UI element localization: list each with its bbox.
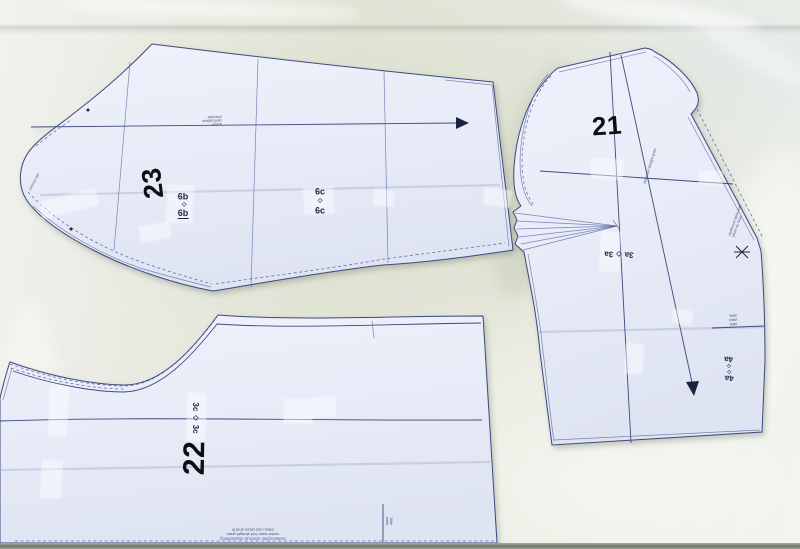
tape-piece (312, 397, 337, 418)
match-mark-6b-bottom: 6b (178, 209, 189, 219)
piece-21-number: 21 (591, 109, 623, 142)
tape-piece (284, 399, 312, 424)
match-mark-3a: 3a (625, 250, 634, 258)
match-diamond-icon: ◇ (727, 368, 731, 373)
piece-23-outline (20, 44, 513, 291)
piece-21-waist-text: Taille waist taille (729, 314, 738, 327)
tape-piece (47, 385, 69, 436)
piece-21-outline (513, 48, 765, 445)
match-mark-6c-bottom: 6c (315, 207, 325, 216)
tape-piece (483, 187, 512, 208)
match-diamond-icon: ◇ (190, 415, 201, 420)
tape-piece (373, 189, 394, 207)
piece-23-shape (20, 44, 513, 291)
match-mark-6b-top: 6b (178, 193, 189, 202)
match-mark-3c-pair: 3c ◇ 3c (189, 402, 201, 433)
fabric-bottom-edge (0, 543, 800, 549)
match-mark-4a: 4a (724, 354, 733, 363)
piece-23-grainline-text: fadenlauf straight grain droit fil (202, 115, 222, 127)
match-mark-4a: 4a (725, 373, 734, 382)
grain-text-line: droit fil (202, 123, 222, 128)
photo-sewing-patterns-on-fabric: 23 6b ◇ 6b 6c ◇ 6c fadenlauf straight gr… (0, 0, 800, 549)
match-mark-3a-pair: 3a ◇ 3a (604, 249, 633, 258)
piece-23-dot-upper (87, 109, 90, 112)
match-diamond-icon: ◇ (318, 198, 323, 204)
piece-22-waist-text: Taille waist (385, 517, 393, 525)
match-mark-3c: 3c (189, 425, 201, 434)
waist-text-line: taille (729, 322, 737, 326)
match-diamond-icon: ◇ (616, 250, 622, 257)
waist-text-line: waist (385, 517, 389, 525)
piece-22-shape (0, 315, 497, 543)
piece-23-dot-lower (70, 228, 73, 231)
tape-piece (590, 158, 623, 180)
tape-piece (40, 459, 63, 498)
piece-22-outline (0, 315, 497, 543)
tape-piece (671, 309, 693, 326)
piece-22-bottom-text: middenachter stofvouw draadrichting cent… (220, 527, 285, 541)
bottom-text-line: middenachter stofvouw draadrichting (220, 536, 285, 541)
waist-text-line: Taille (389, 517, 393, 525)
match-mark-3c: 3c (189, 402, 201, 411)
match-mark-4a-pair: 4a ◇ ◇ 4a (724, 354, 734, 382)
tape-piece (624, 343, 644, 374)
piece-22-number: 22 (178, 441, 213, 476)
match-mark-3a: 3a (604, 249, 613, 257)
match-mark-6c-top: 6c (315, 188, 325, 197)
bottom-text-line: center back fold straight grain (220, 532, 285, 537)
tape-piece (699, 171, 723, 186)
pattern-pieces-canvas (0, 0, 800, 549)
piece-21-shape (513, 48, 765, 445)
piece-23-number: 23 (136, 166, 171, 201)
